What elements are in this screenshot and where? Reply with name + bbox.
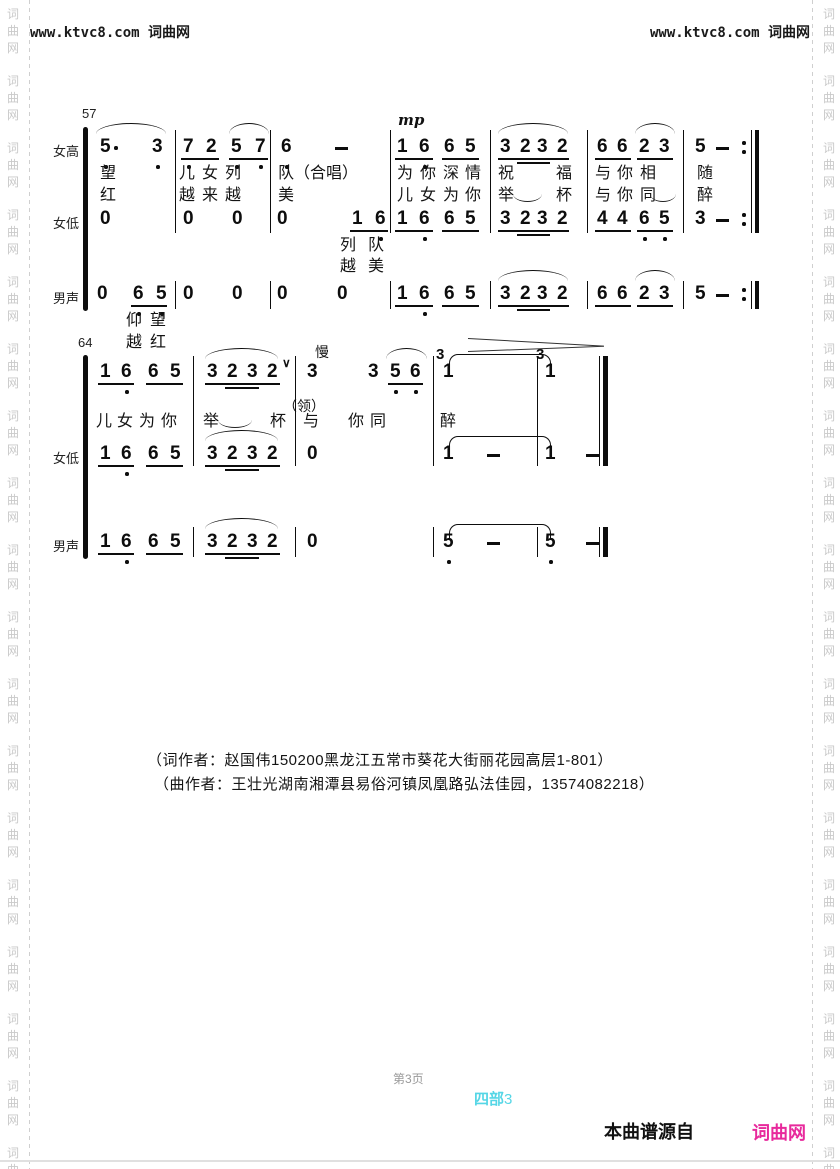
watermark-text: 词曲网 (4, 676, 22, 727)
note-number: 3 (307, 362, 318, 381)
final-barline-thin (599, 527, 600, 557)
watermark-text: 词曲网 (4, 6, 22, 57)
barline (295, 527, 296, 557)
note-number: 1 (397, 209, 408, 228)
watermark-text: 词曲网 (820, 743, 838, 794)
note-number: 6 (375, 209, 386, 228)
lyric-tie (513, 194, 542, 202)
low-octave-dot (156, 165, 160, 169)
beam (98, 383, 134, 385)
rest-number: 0 (232, 284, 243, 303)
rest-number: 0 (97, 284, 108, 303)
low-octave-dot (643, 237, 647, 241)
watermark-text: 词曲网 (4, 542, 22, 593)
note-number: 2 (557, 284, 568, 303)
note-number: 3 (247, 444, 258, 463)
note-number: 2 (557, 137, 568, 156)
beam (595, 305, 631, 307)
slur-arc (205, 518, 278, 529)
note-number: 6 (444, 209, 455, 228)
second-beam (517, 309, 550, 311)
watermark-text: 词曲网 (820, 6, 838, 57)
lyric-syllable: 仰 (126, 313, 142, 329)
watermark-text: 词曲网 (820, 1011, 838, 1062)
note-number: 5 (695, 137, 706, 156)
lyricist-credit: （词作者：赵国伟150200黑龙江五常市葵花大街丽花园高层1-801） (147, 749, 613, 770)
beam (229, 158, 268, 160)
final-barline-thick (603, 356, 608, 466)
watermark-text: 词曲网 (820, 140, 838, 191)
note-number: 5 (156, 284, 167, 303)
note-number: 3 (207, 362, 218, 381)
beam (442, 305, 479, 307)
watermark-text: 词曲网 (4, 274, 22, 325)
note-number: 3 (537, 137, 548, 156)
watermark-text: 词曲网 (820, 207, 838, 258)
sheet-page: 词曲网词曲网词曲网词曲网词曲网词曲网词曲网词曲网词曲网词曲网词曲网词曲网词曲网词… (0, 0, 840, 1169)
header-watermark-right: www.ktvc8.com 词曲网 (650, 22, 810, 42)
watermark-text: 词曲网 (4, 743, 22, 794)
lyric-syllable: 举 (498, 188, 514, 204)
page-number: 第3页 (393, 1070, 424, 1087)
low-octave-dot (394, 390, 398, 394)
lyric-syllable: 与 (595, 166, 611, 182)
lyric-syllable: 同 (370, 414, 386, 430)
watermark-text: 词曲网 (820, 944, 838, 995)
note-number: 3 (537, 284, 548, 303)
watermark-text: 词曲网 (820, 73, 838, 124)
rest-number: 0 (183, 284, 194, 303)
lyric-syllable: 红 (100, 188, 116, 204)
lyric-syllable: 女 (202, 166, 218, 182)
low-octave-dot (414, 390, 418, 394)
lyric-syllable: 儿 (179, 166, 195, 182)
barline (587, 130, 588, 233)
tie (449, 354, 551, 368)
note-number: 6 (148, 362, 159, 381)
note-number: 6 (419, 137, 430, 156)
barline (490, 281, 491, 309)
note-number: 3 (695, 209, 706, 228)
rest-number: 0 (100, 209, 111, 228)
lyric-syllable: 越 (179, 188, 195, 204)
note-number: 2 (267, 362, 278, 381)
note-number: 1 (100, 532, 111, 551)
repeat-dot (742, 213, 746, 217)
beam (498, 305, 569, 307)
lyric-syllable: 红 (150, 335, 166, 351)
slur-arc (205, 348, 278, 359)
slur-arc (386, 348, 427, 359)
lyric-syllable: 越 (126, 335, 142, 351)
lyric-syllable: 举 (203, 414, 219, 430)
beam (442, 158, 479, 160)
lyric-syllable: 你 (161, 414, 177, 430)
lyric-syllable: 望 (150, 313, 166, 329)
barline (390, 130, 391, 233)
lyric-syllable: 相 (640, 166, 656, 182)
beam (146, 465, 183, 467)
watermark-text: 词曲网 (820, 810, 838, 861)
beam (146, 553, 183, 555)
low-octave-dot (447, 560, 451, 564)
barline (433, 527, 434, 557)
barline (433, 356, 434, 466)
watermark-text: 词曲网 (4, 408, 22, 459)
dash-line (716, 219, 729, 222)
low-octave-dot (125, 390, 129, 394)
note-number: 2 (639, 284, 650, 303)
note-number: 2 (206, 137, 217, 156)
watermark-text: 词曲网 (4, 609, 22, 660)
second-beam (517, 162, 550, 164)
note-number: 3 (659, 284, 670, 303)
lyric-syllable: 醉 (697, 188, 713, 204)
lyric-syllable: 为 (397, 166, 413, 182)
watermark-text: 词曲网 (4, 475, 22, 526)
lyric-syllable: 越 (340, 259, 356, 275)
source-site-link[interactable]: 词曲网 (752, 1119, 806, 1145)
note-number: 5 (659, 209, 670, 228)
slur-arc (205, 430, 278, 441)
watermark-text: 词曲网 (4, 140, 22, 191)
rest-number: 0 (337, 284, 348, 303)
note-number: 6 (597, 137, 608, 156)
note-number: 6 (121, 532, 132, 551)
lyric-syllable: 女 (117, 414, 133, 430)
beam (442, 230, 479, 232)
slur-arc (635, 123, 675, 134)
right-dashed-border (812, 0, 813, 1169)
lyric-syllable: 福 (556, 166, 572, 182)
repeat-dot (742, 297, 746, 301)
watermark-text: 词曲网 (820, 341, 838, 392)
note-number: 2 (557, 209, 568, 228)
beam (205, 553, 280, 555)
barline (295, 356, 296, 466)
note-number: 2 (267, 532, 278, 551)
lyric-syllable: 情 (465, 166, 481, 182)
watermark-text: 词曲网 (820, 676, 838, 727)
lyric-syllable: 与 (595, 188, 611, 204)
note-number: 5 (390, 362, 401, 381)
watermark-text: 词曲网 (4, 1078, 22, 1129)
note-number: 2 (520, 137, 531, 156)
note-number: 6 (121, 362, 132, 381)
lyric-syllable: 儿 (397, 188, 413, 204)
dash-line (586, 454, 599, 457)
lyric-syllable: 越 (225, 188, 241, 204)
note-number: 6 (133, 284, 144, 303)
barline (270, 281, 271, 309)
lyric-syllable: 你 (465, 188, 481, 204)
note-number: 6 (410, 362, 421, 381)
rest-number: 0 (277, 209, 288, 228)
lyric-syllable: 深 (443, 166, 459, 182)
barline (175, 281, 176, 309)
left-dashed-border (29, 0, 30, 1169)
note-number: 3 (368, 362, 379, 381)
note-number: 1 (352, 209, 363, 228)
second-beam (225, 557, 259, 559)
note-number: 3 (247, 532, 258, 551)
rest-number: 0 (183, 209, 194, 228)
slur-arc (498, 123, 568, 134)
dash-line (716, 147, 729, 150)
note-number: 2 (227, 444, 238, 463)
note-number: 3 (659, 137, 670, 156)
dash-line (487, 454, 500, 457)
watermark-text: 词曲网 (4, 877, 22, 928)
lyric-syllable: 你 (420, 166, 436, 182)
note-number: 1 (100, 444, 111, 463)
breath-mark: ∨ (282, 356, 291, 370)
lyric-syllable: 女 (420, 188, 436, 204)
note-number: 1 (100, 362, 111, 381)
watermark-text: 词曲网 (4, 73, 22, 124)
note-number: 5 (170, 362, 181, 381)
barline (390, 281, 391, 309)
beam (637, 158, 673, 160)
barline (490, 130, 491, 233)
watermark-text: 词曲网 (4, 944, 22, 995)
final-barline-thick (755, 281, 760, 309)
low-octave-dot (125, 472, 129, 476)
lyric-syllable: 为 (443, 188, 459, 204)
rest-number: 0 (232, 209, 243, 228)
dynamic-mark: mp (398, 111, 424, 129)
note-number: 5 (465, 284, 476, 303)
lyric-syllable: 队 (368, 238, 384, 254)
note-number: 6 (444, 284, 455, 303)
beam (146, 383, 183, 385)
measure-number: 57 (82, 106, 96, 121)
final-barline-thin (751, 281, 752, 309)
watermark-text: 词曲网 (4, 1145, 22, 1169)
barline (587, 281, 588, 309)
lyric-tie (218, 420, 252, 428)
watermark-text: 词曲网 (820, 877, 838, 928)
note-number: 3 (207, 444, 218, 463)
note-number: 6 (639, 209, 650, 228)
beam (388, 383, 423, 385)
composer-credit: （曲作者：王壮光湖南湘潭县易俗河镇凤凰路弘法佳园，13574082218） (154, 773, 654, 794)
note-number: 7 (183, 137, 194, 156)
lyric-syllable: 儿 (96, 414, 112, 430)
rest-number: 0 (307, 532, 318, 551)
note-number: 3 (436, 347, 444, 362)
note-number: 4 (597, 209, 608, 228)
part-label: 女低 (53, 213, 79, 232)
lyric-syllable: 望 (100, 166, 116, 182)
repeat-dot (742, 222, 746, 226)
part-label: 女低 (53, 448, 79, 467)
rest-number: 0 (277, 284, 288, 303)
final-barline-thick (603, 527, 608, 557)
part-number: 3 (504, 1091, 512, 1108)
repeat-dot (742, 288, 746, 292)
watermark-text: 词曲网 (4, 341, 22, 392)
second-beam (225, 387, 259, 389)
beam (498, 230, 569, 232)
beam (595, 230, 631, 232)
beam (637, 230, 673, 232)
note-number: 3 (207, 532, 218, 551)
part-label: 女高 (53, 141, 79, 160)
final-barline-thin (751, 130, 752, 233)
lyric-syllable: 随 (697, 166, 713, 182)
beam (637, 305, 673, 307)
note-number: 5 (695, 284, 706, 303)
note-number: 1 (397, 284, 408, 303)
low-octave-dot (423, 237, 427, 241)
repeat-dot (742, 150, 746, 154)
barline (683, 281, 684, 309)
lyric-syllable: 美 (368, 259, 384, 275)
beam (98, 465, 134, 467)
rest-number: 0 (307, 444, 318, 463)
watermark-text: 词曲网 (820, 542, 838, 593)
lyric-syllable: 杯 (556, 188, 572, 204)
note-number: 1 (397, 137, 408, 156)
slur-arc (229, 123, 269, 134)
note-number: 5 (170, 532, 181, 551)
part-label: 男声 (53, 288, 79, 307)
beam (181, 158, 219, 160)
second-beam (225, 469, 259, 471)
note-number: 3 (500, 209, 511, 228)
lyric-syllable: 队（合唱） (278, 166, 358, 182)
barline (683, 130, 684, 233)
tempo-mark: 慢 (315, 342, 329, 362)
slur-arc (498, 270, 568, 281)
header-watermark-left: www.ktvc8.com 词曲网 (30, 22, 190, 42)
note-number: 3 (500, 137, 511, 156)
low-octave-dot (549, 560, 553, 564)
lyric-syllable: 为 (139, 414, 155, 430)
note-number: 3 (247, 362, 258, 381)
part-name: 四部 (474, 1091, 504, 1108)
lyric-syllable: 列 (340, 238, 356, 254)
left-watermark-column: 词曲网词曲网词曲网词曲网词曲网词曲网词曲网词曲网词曲网词曲网词曲网词曲网词曲网词… (4, 6, 22, 1169)
beam (205, 383, 280, 385)
beam (395, 230, 433, 232)
note-number: 6 (148, 444, 159, 463)
lyric-syllable: 你 (617, 188, 633, 204)
note-number: 6 (419, 284, 430, 303)
watermark-text: 词曲网 (820, 1145, 838, 1169)
system-brace (83, 127, 88, 311)
note-number: 5 (100, 137, 111, 156)
note-number: 2 (520, 209, 531, 228)
dash-line (487, 542, 500, 545)
note-number: 7 (255, 137, 266, 156)
barline (175, 130, 176, 233)
source-prefix: 本曲谱源自 (604, 1118, 694, 1144)
note-number: 6 (444, 137, 455, 156)
slur-arc (635, 270, 675, 281)
tie (449, 436, 551, 450)
lyric-syllable: 与 (303, 414, 319, 430)
system-brace (83, 355, 88, 559)
note-number: 5 (465, 209, 476, 228)
note-number: 6 (597, 284, 608, 303)
note-number: 2 (520, 284, 531, 303)
watermark-text: 词曲网 (820, 408, 838, 459)
note-number: 6 (121, 444, 132, 463)
right-watermark-column: 词曲网词曲网词曲网词曲网词曲网词曲网词曲网词曲网词曲网词曲网词曲网词曲网词曲网词… (820, 6, 838, 1169)
note-number: 5 (465, 137, 476, 156)
note-number: 6 (148, 532, 159, 551)
beam (350, 230, 388, 232)
dash-line (586, 542, 599, 545)
watermark-text: 词曲网 (820, 609, 838, 660)
beam (498, 158, 569, 160)
low-octave-dot (663, 237, 667, 241)
note-number: 4 (617, 209, 628, 228)
final-barline-thin (599, 356, 600, 466)
note-number: 3 (152, 137, 163, 156)
note-number: 3 (537, 209, 548, 228)
watermark-text: 词曲网 (4, 207, 22, 258)
lyric-syllable: 你 (617, 166, 633, 182)
note-number: 3 (500, 284, 511, 303)
lyric-syllable: 你 (348, 414, 364, 430)
dash-line (716, 294, 729, 297)
beam (131, 305, 167, 307)
lyric-syllable: 美 (278, 188, 294, 204)
note-number: 5 (231, 137, 242, 156)
lyric-syllable: 祝 (498, 166, 514, 182)
lyric-syllable: 列 (225, 166, 241, 182)
second-beam (517, 234, 550, 236)
beam (205, 465, 280, 467)
note-number: 2 (227, 362, 238, 381)
watermark-text: 词曲网 (4, 1011, 22, 1062)
note-number: 5 (170, 444, 181, 463)
bottom-border (0, 1160, 840, 1162)
beam (98, 553, 134, 555)
final-barline-thick (755, 130, 760, 233)
barline (193, 527, 194, 557)
lyric-syllable: 来 (202, 188, 218, 204)
note-number: 2 (639, 137, 650, 156)
watermark-text: 词曲网 (820, 1078, 838, 1129)
watermark-text: 词曲网 (820, 274, 838, 325)
low-octave-dot (125, 560, 129, 564)
beam (395, 305, 433, 307)
lyric-syllable: 醉 (440, 414, 456, 430)
note-number: 6 (617, 284, 628, 303)
watermark-text: 词曲网 (4, 810, 22, 861)
part-label-footer: 四部3 (474, 1088, 512, 1109)
repeat-dot (742, 141, 746, 145)
part-label: 男声 (53, 536, 79, 555)
watermark-text: 词曲网 (820, 475, 838, 526)
lyric-syllable: 杯 (270, 414, 286, 430)
augmentation-dot (114, 146, 118, 150)
low-octave-dot (423, 312, 427, 316)
beam (595, 158, 631, 160)
note-number: 2 (267, 444, 278, 463)
barline (193, 356, 194, 466)
note-number: 6 (419, 209, 430, 228)
low-octave-dot (259, 165, 263, 169)
note-number: 2 (227, 532, 238, 551)
tie (449, 524, 551, 538)
slur-arc (96, 123, 166, 134)
note-number: 6 (281, 137, 292, 156)
